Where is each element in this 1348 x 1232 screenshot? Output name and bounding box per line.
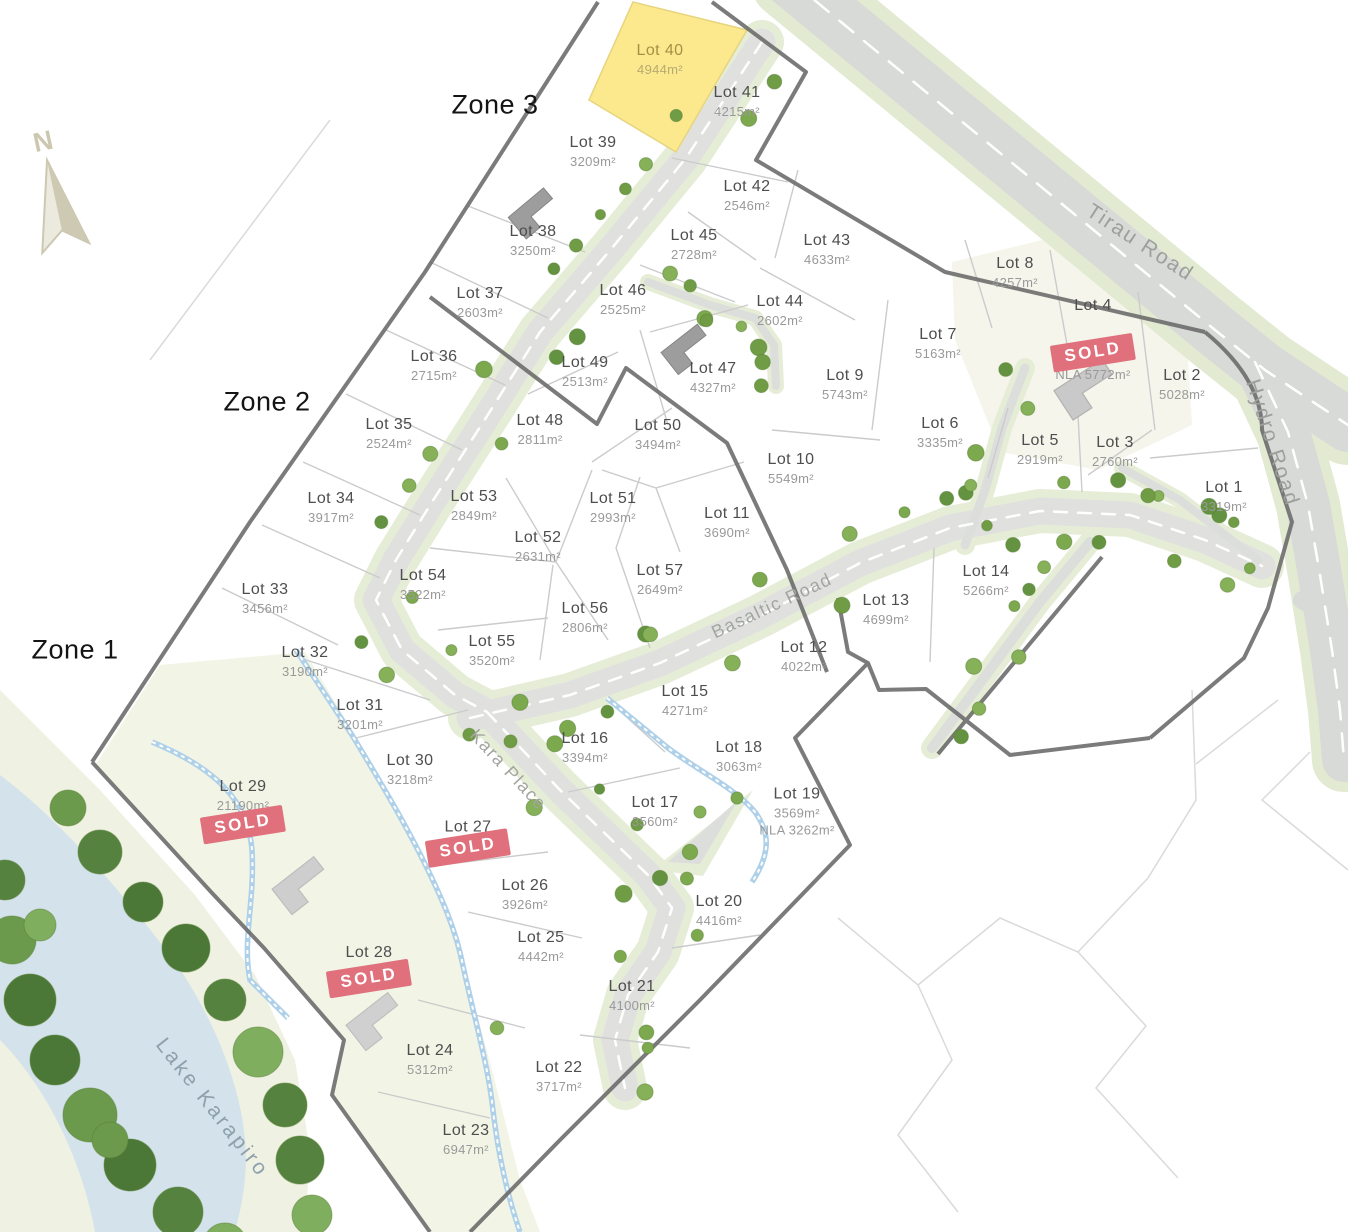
lot-25: Lot 254442m²	[518, 928, 565, 966]
lot-number: Lot 33	[242, 580, 289, 601]
lot-50: Lot 503494m²	[635, 416, 682, 454]
lot-area: 2728m²	[671, 247, 718, 264]
lot-number: Lot 46	[600, 281, 647, 302]
lot-number: Lot 52	[515, 528, 562, 549]
lot-number: Lot 14	[963, 562, 1010, 583]
lot-1: Lot 13319m²	[1201, 478, 1247, 516]
labels-layer: Lot 13319m²Lot 25028m²Lot 32760m²Lot 4SO…	[0, 0, 1348, 1232]
lot-number: Lot 12	[781, 638, 828, 659]
lot-area: 3456m²	[242, 601, 289, 618]
lot-area: 2715m²	[411, 368, 458, 385]
lot-number: Lot 23	[443, 1121, 490, 1142]
lot-7: Lot 75163m²	[915, 325, 961, 363]
lot-number: Lot 16	[562, 729, 609, 750]
lot-38: Lot 383250m²	[510, 222, 557, 260]
lot-area: 3494m²	[635, 437, 682, 454]
lot-52: Lot 522631m²	[515, 528, 562, 566]
lot-number: Lot 13	[863, 591, 910, 612]
lot-area: 4416m²	[696, 913, 743, 930]
lot-area: 3063m²	[716, 759, 763, 776]
lot-number: Lot 37	[457, 284, 504, 305]
lot-area: 5549m²	[768, 471, 815, 488]
lot-39: Lot 393209m²	[570, 133, 617, 171]
lot-41: Lot 414215m²	[714, 83, 761, 121]
lot-number: Lot 25	[518, 928, 565, 949]
zone-label-2: Zone 2	[223, 387, 310, 418]
lot-area: 4271m²	[662, 703, 709, 720]
lot-56: Lot 562806m²	[562, 599, 609, 637]
lot-number: Lot 26	[502, 876, 549, 897]
lot-43: Lot 434633m²	[804, 231, 851, 269]
lot-49: Lot 492513m²	[562, 353, 609, 391]
lot-47: Lot 474327m²	[690, 359, 737, 397]
lot-number: Lot 10	[768, 450, 815, 471]
zone-label-3: Zone 3	[451, 90, 538, 121]
lot-number: Lot 20	[696, 892, 743, 913]
lot-number: Lot 19	[759, 785, 834, 806]
lot-number: Lot 45	[671, 226, 718, 247]
lot-23: Lot 236947m²	[443, 1121, 490, 1159]
lot-area: 5266m²	[963, 583, 1010, 600]
lot-21: Lot 214100m²	[609, 977, 656, 1015]
lot-area: 2524m²	[366, 436, 413, 453]
lot-area: 5743m²	[822, 387, 868, 404]
lot-34: Lot 343917m²	[308, 489, 355, 527]
lot-22: Lot 223717m²	[536, 1058, 583, 1096]
lot-2: Lot 25028m²	[1159, 366, 1205, 404]
lot-area: 3520m²	[469, 653, 516, 670]
lot-18: Lot 183063m²	[716, 738, 763, 776]
lot-area: 2631m²	[515, 549, 562, 566]
lot-area: 6947m²	[443, 1142, 490, 1159]
lot-area: 2806m²	[562, 620, 609, 637]
lot-4: Lot 4SOLDNLA 5772m²	[1051, 296, 1134, 384]
lot-number: Lot 9	[822, 366, 868, 387]
lot-number: Lot 39	[570, 133, 617, 154]
lot-area: 3690m²	[704, 525, 750, 542]
lot-area: 2919m²	[1017, 452, 1063, 469]
lot-16: Lot 163394m²	[562, 729, 609, 767]
lot-number: Lot 22	[536, 1058, 583, 1079]
lot-number: Lot 36	[411, 347, 458, 368]
road-label-basaltic-road: Basaltic Road	[708, 569, 835, 643]
lot-number: Lot 56	[562, 599, 609, 620]
lot-number: Lot 6	[917, 414, 963, 435]
lot-area: 2546m²	[724, 198, 771, 215]
lot-number: Lot 49	[562, 353, 609, 374]
lot-area: 5028m²	[1159, 387, 1205, 404]
lot-44: Lot 442602m²	[757, 292, 804, 330]
lot-13: Lot 134699m²	[863, 591, 910, 629]
lot-45: Lot 452728m²	[671, 226, 718, 264]
lot-9: Lot 95743m²	[822, 366, 868, 404]
lot-number: Lot 8	[992, 254, 1038, 275]
lot-number: Lot 11	[704, 504, 750, 525]
lot-20: Lot 204416m²	[696, 892, 743, 930]
lot-32: Lot 323190m²	[282, 643, 329, 681]
lot-area: 5312m²	[407, 1062, 454, 1079]
lot-number: Lot 7	[915, 325, 961, 346]
road-label-hydro-road: Hydro Road	[1240, 376, 1304, 509]
lot-8: Lot 84257m²	[992, 254, 1038, 292]
lot-40: Lot 404944m²	[637, 41, 684, 79]
sold-badge: SOLD	[326, 959, 412, 999]
lot-area: 3190m²	[282, 664, 329, 681]
road-label-kara-place: Kara Place	[465, 725, 551, 815]
lot-area: 3319m²	[1201, 499, 1247, 516]
lot-area: 2525m²	[600, 302, 647, 319]
lot-number: Lot 2	[1159, 366, 1205, 387]
lot-37: Lot 372603m²	[457, 284, 504, 322]
lot-30: Lot 303218m²	[387, 751, 434, 789]
lot-number: Lot 31	[337, 696, 384, 717]
lot-area: 2849m²	[451, 508, 498, 525]
lot-15: Lot 154271m²	[662, 682, 709, 720]
lot-number: Lot 50	[635, 416, 682, 437]
lot-number: Lot 51	[590, 489, 637, 510]
lot-area: 5163m²	[915, 346, 961, 363]
lot-area: 3717m²	[536, 1079, 583, 1096]
lot-26: Lot 263926m²	[502, 876, 549, 914]
lot-number: Lot 35	[366, 415, 413, 436]
lot-area: 4257m²	[992, 275, 1038, 292]
subdivision-map: N Lot 13319m²Lot 25028m²Lot 32760m²Lot 4…	[0, 0, 1348, 1232]
lot-number: Lot 48	[517, 411, 564, 432]
lot-area: 3917m²	[308, 510, 355, 527]
lot-number: Lot 34	[308, 489, 355, 510]
lot-area: 3201m²	[337, 717, 384, 734]
lot-number: Lot 4	[1051, 296, 1134, 317]
lot-number: Lot 55	[469, 632, 516, 653]
lot-number: Lot 18	[716, 738, 763, 759]
lot-area: 3926m²	[502, 897, 549, 914]
road-label-tirau-road: Tirau Road	[1082, 199, 1198, 286]
lot-number: Lot 21	[609, 977, 656, 998]
lot-area: 3250m²	[510, 243, 557, 260]
lot-51: Lot 512993m²	[590, 489, 637, 527]
lot-14: Lot 145266m²	[963, 562, 1010, 600]
lot-54: Lot 543522m²	[400, 566, 447, 604]
lot-number: Lot 30	[387, 751, 434, 772]
lot-area: 4699m²	[863, 612, 910, 629]
water-label: Lake Karapiro	[150, 1034, 273, 1183]
lot-area: 4022m²	[781, 659, 828, 676]
zone-label-1: Zone 1	[31, 635, 118, 666]
lot-24: Lot 245312m²	[407, 1041, 454, 1079]
lot-number: Lot 1	[1201, 478, 1247, 499]
lot-number: Lot 47	[690, 359, 737, 380]
lot-10: Lot 105549m²	[768, 450, 815, 488]
lot-number: Lot 43	[804, 231, 851, 252]
lot-area: 4944m²	[637, 62, 684, 79]
lot-number: Lot 41	[714, 83, 761, 104]
lot-area: 3522m²	[400, 587, 447, 604]
lot-48: Lot 482811m²	[517, 411, 564, 449]
lot-number: Lot 38	[510, 222, 557, 243]
lot-5: Lot 52919m²	[1017, 431, 1063, 469]
lot-area: 2513m²	[562, 374, 609, 391]
lot-31: Lot 313201m²	[337, 696, 384, 734]
lot-11: Lot 113690m²	[704, 504, 750, 542]
lot-12: Lot 124022m²	[781, 638, 828, 676]
lot-42: Lot 422546m²	[724, 177, 771, 215]
lot-area: NLA 3262m²	[759, 822, 834, 839]
lot-number: Lot 57	[637, 561, 684, 582]
lot-28: Lot 28SOLD	[327, 943, 410, 993]
lot-number: Lot 44	[757, 292, 804, 313]
lot-number: Lot 24	[407, 1041, 454, 1062]
lot-number: Lot 15	[662, 682, 709, 703]
lot-area: 3218m²	[387, 772, 434, 789]
lot-35: Lot 352524m²	[366, 415, 413, 453]
lot-area: 4100m²	[609, 998, 656, 1015]
lot-area: 2760m²	[1092, 454, 1138, 471]
lot-number: Lot 40	[637, 41, 684, 62]
lot-19: Lot 193569m²NLA 3262m²	[759, 785, 834, 840]
lot-number: Lot 5	[1017, 431, 1063, 452]
lot-area: 4633m²	[804, 252, 851, 269]
lot-area: 3209m²	[570, 154, 617, 171]
lot-6: Lot 63335m²	[917, 414, 963, 452]
lot-area: 4215m²	[714, 104, 761, 121]
lot-area: 2649m²	[637, 582, 684, 599]
lot-area: 2993m²	[590, 510, 637, 527]
lot-55: Lot 553520m²	[469, 632, 516, 670]
lot-number: Lot 32	[282, 643, 329, 664]
lot-area: 3560m²	[632, 814, 679, 831]
lot-number: Lot 42	[724, 177, 771, 198]
lot-area: 3394m²	[562, 750, 609, 767]
lot-57: Lot 572649m²	[637, 561, 684, 599]
lot-area: 2811m²	[517, 432, 564, 449]
lot-number: Lot 54	[400, 566, 447, 587]
lot-29: Lot 2921190m²SOLD	[201, 777, 284, 839]
lot-area: 2603m²	[457, 305, 504, 322]
lot-number: Lot 53	[451, 487, 498, 508]
lot-number: Lot 17	[632, 793, 679, 814]
lot-53: Lot 532849m²	[451, 487, 498, 525]
lot-36: Lot 362715m²	[411, 347, 458, 385]
lot-area: 2602m²	[757, 313, 804, 330]
lot-33: Lot 333456m²	[242, 580, 289, 618]
lot-area: 3569m²	[759, 806, 834, 823]
lot-46: Lot 462525m²	[600, 281, 647, 319]
lot-3: Lot 32760m²	[1092, 433, 1138, 471]
lot-area: 3335m²	[917, 435, 963, 452]
lot-number: Lot 3	[1092, 433, 1138, 454]
lot-area: 4327m²	[690, 380, 737, 397]
lot-17: Lot 173560m²	[632, 793, 679, 831]
lot-area: 4442m²	[518, 949, 565, 966]
lot-27: Lot 27SOLD	[426, 818, 509, 863]
lot-number: Lot 29	[201, 777, 284, 798]
